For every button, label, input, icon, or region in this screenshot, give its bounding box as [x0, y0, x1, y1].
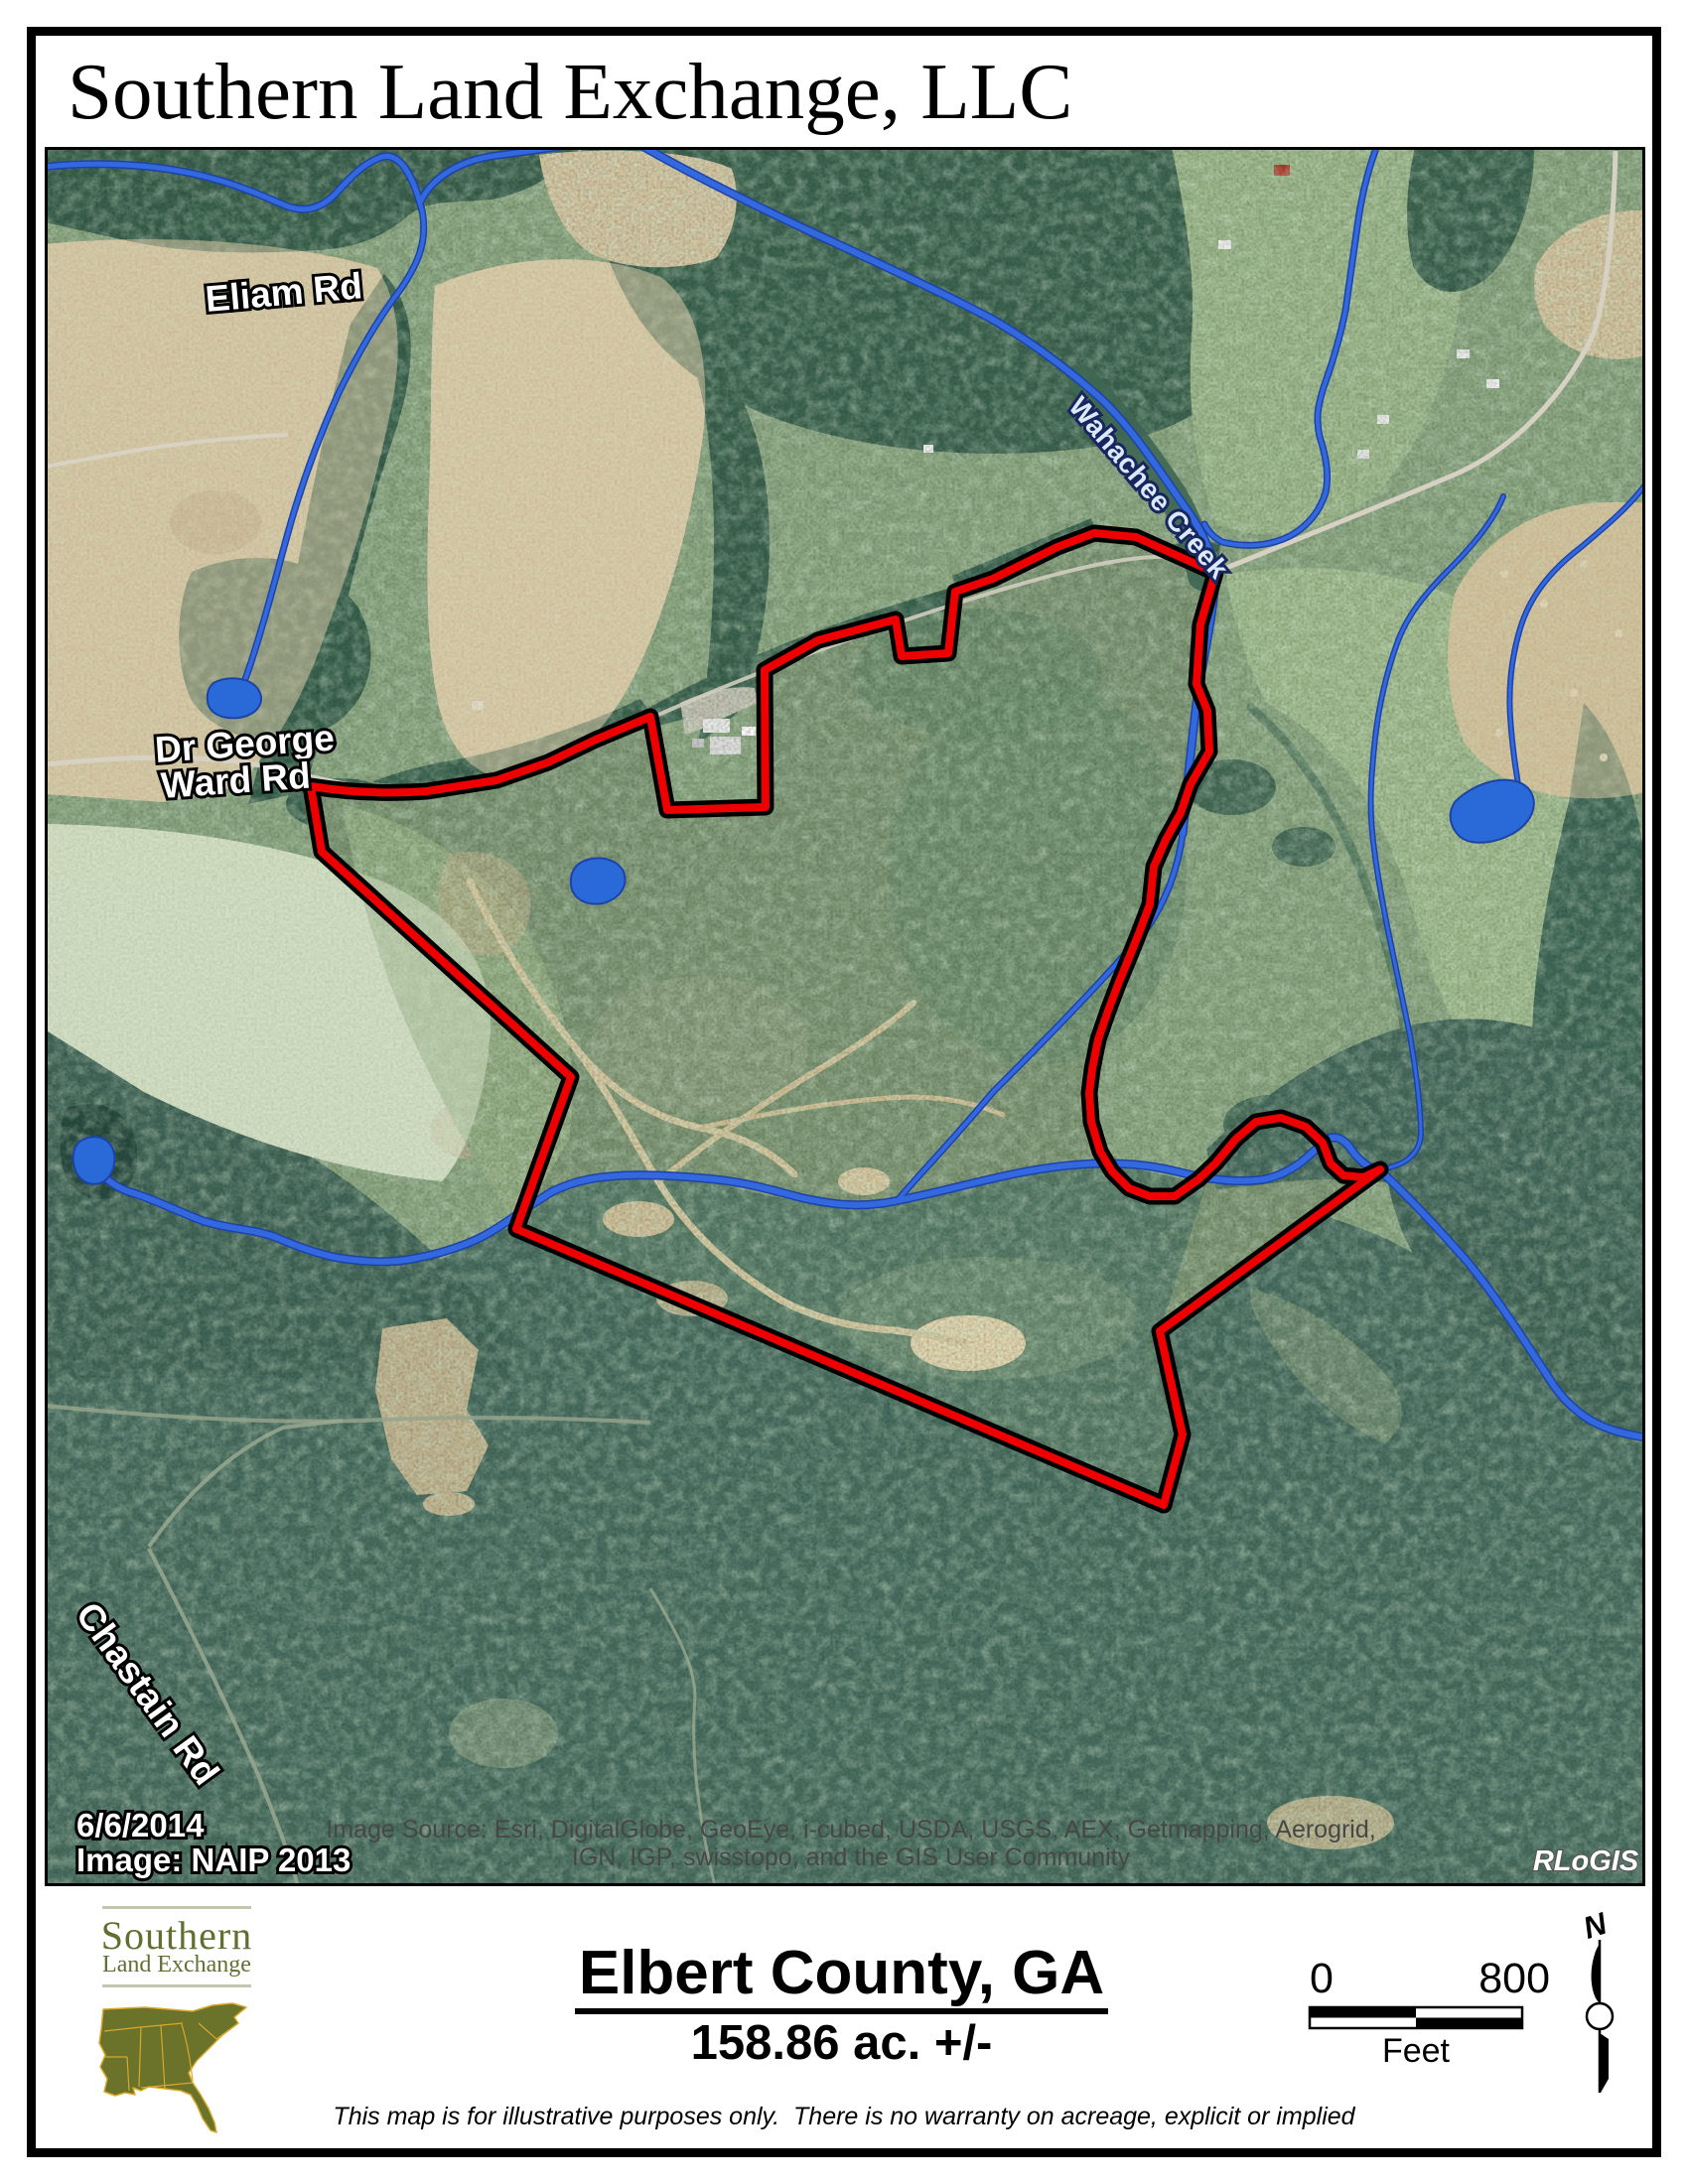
svg-text:0: 0 — [1310, 1955, 1334, 2002]
svg-text:Image: NAIP 2013: Image: NAIP 2013 — [76, 1842, 351, 1878]
svg-text:Image Source: Esri, DigitalGlo: Image Source: Esri, DigitalGlobe, GeoEye… — [326, 1816, 1375, 1843]
svg-text:800: 800 — [1478, 1955, 1550, 2002]
svg-text:IGN, IGP, swisstopo, and the G: IGN, IGP, swisstopo, and the GIS User Co… — [572, 1843, 1131, 1871]
svg-text:N: N — [1579, 1906, 1612, 1946]
svg-text:RLoGIS: RLoGIS — [1533, 1845, 1639, 1877]
svg-text:Feet: Feet — [1382, 2032, 1451, 2070]
svg-text:6/6/2014: 6/6/2014 — [76, 1807, 205, 1843]
